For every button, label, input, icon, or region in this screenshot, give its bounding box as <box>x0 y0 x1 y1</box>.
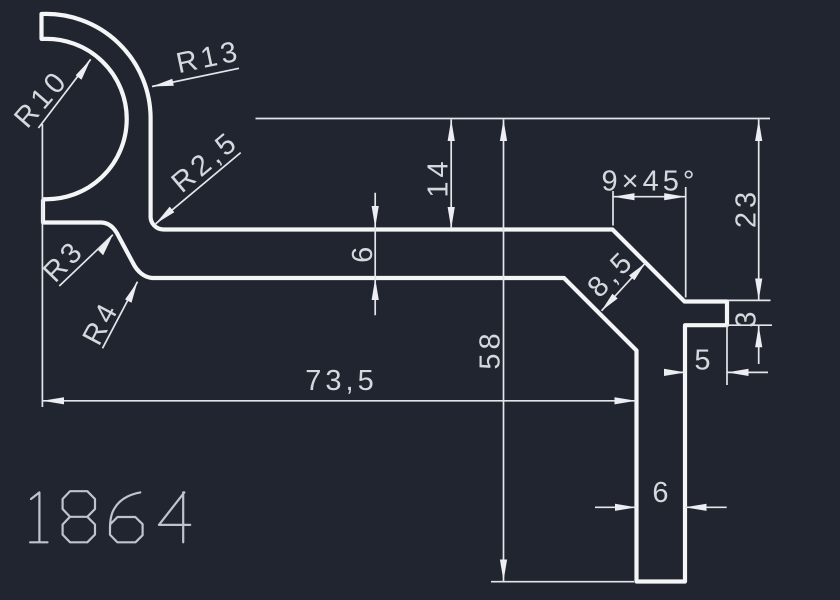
svg-text:6: 6 <box>652 477 672 509</box>
svg-text:58: 58 <box>475 329 507 369</box>
svg-text:6: 6 <box>347 243 379 263</box>
svg-text:9×45°: 9×45° <box>602 166 699 198</box>
svg-text:5: 5 <box>694 345 714 377</box>
svg-text:73,5: 73,5 <box>305 365 377 397</box>
svg-text:3: 3 <box>731 307 763 327</box>
svg-text:23: 23 <box>731 188 763 228</box>
svg-text:14: 14 <box>423 157 455 197</box>
